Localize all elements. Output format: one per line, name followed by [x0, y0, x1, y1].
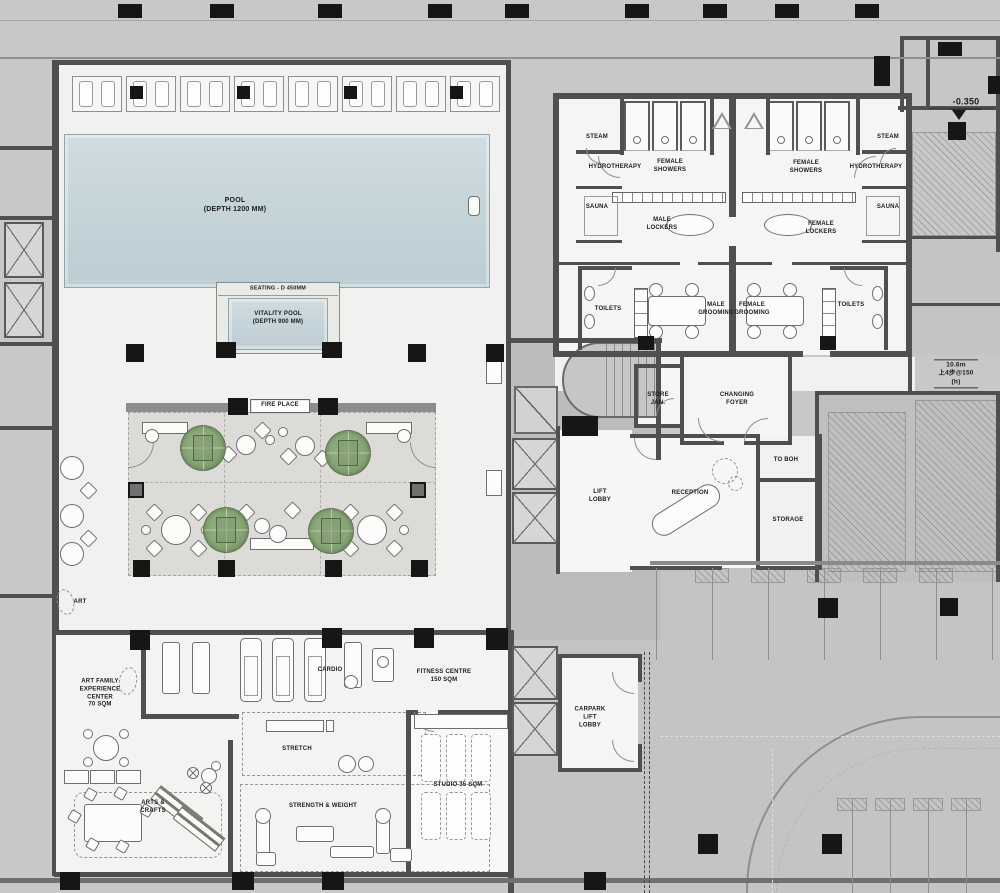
- room-label-female-showers-right: FEMALE SHOWERS: [790, 160, 822, 176]
- mat-shelf: [326, 720, 334, 732]
- column: [450, 86, 463, 99]
- column: [344, 86, 357, 99]
- column: [210, 4, 234, 18]
- wall-segment: [756, 478, 822, 482]
- wall-segment: [0, 57, 1000, 59]
- side-table: [145, 429, 159, 443]
- wall-segment: [910, 236, 1000, 239]
- column: [126, 344, 144, 362]
- room-label-male-grooming: MALE GROOMING: [698, 302, 734, 318]
- stool: [649, 283, 663, 297]
- side-table: [60, 504, 84, 528]
- plant-sketch: [728, 476, 743, 491]
- lounge-chair: [295, 81, 309, 107]
- side-table: [295, 436, 315, 456]
- escalator-icon: [514, 386, 558, 434]
- column: [322, 628, 342, 648]
- mid-right-area: [908, 238, 1000, 355]
- road-dash-line: [660, 736, 1000, 737]
- side-table: [269, 525, 287, 543]
- kids-chair: [83, 729, 93, 739]
- wall-segment: [815, 391, 819, 582]
- wall-segment: [862, 240, 908, 243]
- stool: [685, 283, 699, 297]
- kids-table: [93, 735, 119, 761]
- column: [940, 598, 958, 616]
- room-label-female-lockers: FEMALE LOCKERS: [806, 221, 837, 237]
- side-table: [399, 525, 409, 535]
- foot-bath-triangle-icon: [747, 116, 761, 128]
- wall-segment: [141, 714, 239, 719]
- corridor-cabinet: [486, 470, 502, 496]
- wall-segment: [756, 434, 760, 570]
- kids-stool-icon: [211, 761, 221, 771]
- wall-segment: [126, 403, 230, 412]
- sauna-bench: [866, 196, 900, 236]
- elevator-shaft-icon: [512, 492, 558, 544]
- exercise-ball-icon: [338, 755, 356, 773]
- pool: [64, 134, 490, 288]
- treadmill-belt: [308, 656, 322, 696]
- column: [237, 86, 250, 99]
- column: [855, 4, 879, 18]
- locker-row: [742, 192, 856, 203]
- foot-bath-triangle-icon: [715, 116, 729, 128]
- yoga-mat: [471, 734, 491, 782]
- column: [486, 628, 508, 650]
- room-label-hydrotherapy-right: HYDROTHERAPY: [850, 164, 903, 172]
- room-label-female-showers-left: FEMALE SHOWERS: [654, 159, 686, 175]
- storage-cabinet: [414, 714, 508, 729]
- wall-segment: [788, 353, 792, 445]
- gym-machine-icon: [344, 675, 358, 689]
- wall-segment: [0, 594, 54, 598]
- wall-segment: [0, 20, 1000, 21]
- column: [486, 344, 504, 362]
- wall-segment: [698, 262, 772, 265]
- wall-segment: [0, 146, 54, 150]
- room-label-carpark-lift-lobby: CARPARK LIFT LOBBY: [575, 706, 606, 729]
- level-datum-icon: [952, 110, 966, 120]
- wall-segment: [884, 266, 888, 350]
- hatch-area: [828, 412, 906, 572]
- room-label-changing-foyer: CHANGING FOYER: [720, 392, 754, 408]
- kids-chair: [119, 729, 129, 739]
- lounge-chair: [479, 81, 493, 107]
- gym-machine-icon: [375, 808, 391, 824]
- room-label-female-grooming: FEMALE GROOMING: [734, 302, 770, 318]
- elevator-shaft-icon: [4, 282, 44, 338]
- wall-segment: [0, 216, 54, 220]
- column: [410, 482, 426, 498]
- side-table: [60, 456, 84, 480]
- vanity-counter: [822, 288, 836, 338]
- column: [638, 336, 654, 350]
- room-label-male-lockers: MALE LOCKERS: [647, 217, 678, 233]
- side-table: [236, 435, 256, 455]
- gym-machine-icon: [377, 656, 389, 668]
- lounge-chair: [101, 81, 115, 107]
- road-dash-line: [772, 748, 773, 893]
- column: [322, 342, 342, 358]
- planter-icon: [338, 440, 358, 466]
- wall-segment: [228, 740, 233, 875]
- column: [703, 4, 727, 18]
- wall-segment: [576, 240, 622, 243]
- column: [505, 4, 529, 18]
- yoga-mat: [421, 792, 441, 840]
- wall-segment: [0, 426, 54, 430]
- column: [318, 4, 342, 18]
- locker-row: [612, 192, 726, 203]
- column: [322, 872, 344, 890]
- vanity-counter: [634, 288, 648, 338]
- room-label-storage: STORAGE: [773, 517, 804, 525]
- planter-icon: [193, 435, 213, 461]
- yoga-mat: [421, 734, 441, 782]
- room-label-fire-place: FIRE PLACE: [250, 399, 310, 413]
- room-label-store-jan: STORE JAN.: [647, 392, 669, 408]
- wall-segment: [908, 355, 912, 395]
- gym-machine-icon: [192, 642, 210, 694]
- room-label-fitness-centre: FITNESS CENTRE 150 SQM: [417, 669, 471, 685]
- column: [128, 482, 144, 498]
- side-table: [278, 427, 288, 437]
- expansion-joint: [649, 652, 650, 893]
- wall-segment: [52, 60, 56, 876]
- wall-segment: [996, 391, 1000, 582]
- cubby-shelf: [116, 770, 141, 784]
- room-label-strength-weight: STRENGTH & WEIGHT: [289, 803, 357, 811]
- column: [60, 872, 80, 890]
- room-label-seating: SEATING - D 450MM: [250, 285, 306, 292]
- toilet-fixture-icon: [584, 314, 595, 329]
- planter-icon: [321, 518, 341, 544]
- wall-segment: [218, 295, 338, 296]
- kids-chair: [119, 757, 129, 767]
- lounge-chair: [155, 81, 169, 107]
- elevator-shaft-icon: [512, 646, 558, 700]
- wall-segment: [910, 303, 1000, 306]
- column: [775, 4, 799, 18]
- wall-segment: [856, 99, 860, 155]
- column: [414, 628, 434, 648]
- elevator-shaft-icon: [512, 438, 558, 490]
- side-table: [161, 515, 191, 545]
- column: [218, 560, 235, 577]
- side-table: [397, 429, 411, 443]
- room-label-cardio: CARDIO: [318, 667, 343, 675]
- room-label-hydrotherapy-left: HYDROTHERAPY: [589, 164, 642, 172]
- side-table: [60, 542, 84, 566]
- mat-shelf: [266, 720, 324, 732]
- yoga-mat: [471, 792, 491, 840]
- grid-line: [130, 482, 436, 483]
- treadmill-belt: [276, 656, 290, 696]
- wall-segment: [900, 36, 904, 112]
- column: [820, 336, 836, 350]
- wall-segment: [54, 60, 510, 65]
- shower-drain-icon: [833, 136, 841, 144]
- room-label-toilets-left: TOILETS: [595, 306, 622, 314]
- wall-segment: [650, 561, 1000, 565]
- planter-icon: [216, 517, 236, 543]
- parking-line: [880, 568, 881, 660]
- column: [822, 834, 842, 854]
- room-label-reception: RECEPTION: [672, 490, 709, 498]
- pool-ladder-icon: [468, 196, 480, 216]
- room-label-vitality-pool: VITALITY POOL (DEPTH 900 MM): [253, 311, 303, 327]
- side-table: [265, 435, 275, 445]
- wall-segment: [558, 654, 562, 772]
- wall-segment: [792, 262, 908, 265]
- lounge-chair: [79, 81, 93, 107]
- wall-segment: [558, 262, 680, 265]
- yoga-mat: [446, 792, 466, 840]
- gym-machine-icon: [256, 852, 276, 866]
- wall-segment: [906, 93, 912, 357]
- shower-drain-icon: [633, 136, 641, 144]
- gym-machine-icon: [390, 848, 412, 862]
- column: [228, 398, 248, 415]
- room-label-sauna-left: SAUNA: [586, 204, 608, 212]
- wall-segment: [830, 351, 912, 357]
- exercise-ball-icon: [358, 756, 374, 772]
- column: [118, 4, 142, 18]
- room-label-art-family: ART FAMILY EXPERIENCE CENTER 70 SQM: [80, 678, 121, 709]
- column: [698, 834, 718, 854]
- wall-segment: [558, 768, 642, 772]
- room-label-to-boh: TO BOH: [774, 457, 798, 465]
- cubby-shelf: [90, 770, 115, 784]
- stair-note-label: 10.6m 上4步@150 (h): [934, 359, 978, 388]
- parking-line: [966, 798, 967, 893]
- column: [318, 398, 338, 415]
- column: [938, 42, 962, 56]
- gym-machine-icon: [296, 826, 334, 842]
- toilet-fixture-icon: [584, 286, 595, 301]
- column: [948, 122, 966, 140]
- stool: [685, 325, 699, 339]
- yoga-mat: [446, 734, 466, 782]
- kids-stool-icon: [200, 782, 212, 794]
- hatch-area: [912, 132, 996, 236]
- parking-line: [656, 568, 657, 660]
- parking-line: [928, 798, 929, 893]
- gym-machine-icon: [330, 846, 374, 858]
- room-label-art: ART: [74, 599, 87, 607]
- wall-segment: [680, 353, 684, 445]
- wall-segment: [54, 630, 510, 635]
- column: [584, 872, 606, 890]
- wall-segment: [506, 60, 511, 634]
- wall-segment: [766, 99, 770, 155]
- room-label-toilets-right: TOILETS: [838, 302, 865, 310]
- stool: [783, 325, 797, 339]
- parking-line: [890, 798, 891, 893]
- toilet-fixture-icon: [872, 286, 883, 301]
- gym-machine-icon: [255, 808, 271, 824]
- wall-segment: [996, 36, 1000, 252]
- expansion-joint: [644, 652, 645, 893]
- toilet-fixture-icon: [872, 314, 883, 329]
- wall-segment: [553, 93, 559, 357]
- room-label-lift-lobby: LIFT LOBBY: [589, 489, 611, 505]
- room-label-studio: STUDIO 35 SQM: [434, 782, 483, 790]
- wall-segment: [558, 654, 642, 658]
- wall-segment: [0, 878, 1000, 883]
- parking-line: [768, 568, 769, 660]
- wall-segment: [926, 38, 930, 108]
- craft-table: [84, 804, 142, 842]
- floor-plan-canvas: POOL (DEPTH 1200 MM) SEATING - D 450MM V…: [0, 0, 1000, 893]
- sauna-bench: [584, 196, 618, 236]
- room-label-sauna-right: SAUNA: [877, 204, 899, 212]
- wall-segment: [638, 744, 642, 772]
- lounge-chair: [209, 81, 223, 107]
- room-label-arts-crafts: ARTS & CRAFTS: [140, 800, 166, 816]
- column: [818, 598, 838, 618]
- parking-line: [936, 568, 937, 660]
- stool: [747, 283, 761, 297]
- wall-segment: [638, 654, 642, 682]
- column: [133, 560, 150, 577]
- lounge-chair: [371, 81, 385, 107]
- wall-segment: [862, 186, 908, 189]
- level-datum-label: -0.350: [951, 97, 982, 110]
- parking-line: [852, 798, 853, 893]
- lounge-chair: [403, 81, 417, 107]
- wall-segment: [676, 353, 792, 357]
- elevator-shaft-icon: [4, 222, 44, 278]
- wall-segment: [620, 99, 624, 155]
- parking-line: [992, 568, 993, 660]
- side-table: [141, 525, 151, 535]
- stool: [783, 283, 797, 297]
- column: [988, 76, 1000, 94]
- wall-segment: [0, 342, 54, 346]
- kids-chair: [83, 757, 93, 767]
- lounge-chair: [425, 81, 439, 107]
- column: [130, 630, 150, 650]
- treadmill-belt: [244, 656, 258, 696]
- hatch-area: [915, 400, 997, 572]
- lounge-chair: [317, 81, 331, 107]
- shower-drain-icon: [689, 136, 697, 144]
- column: [130, 86, 143, 99]
- side-table: [254, 518, 270, 534]
- wall-segment: [576, 186, 622, 189]
- kids-stool-icon: [187, 767, 199, 779]
- room-label-steam-right: STEAM: [877, 134, 899, 142]
- room-label-pool: POOL (DEPTH 1200 MM): [204, 196, 267, 214]
- column: [325, 560, 342, 577]
- column: [232, 872, 254, 890]
- shower-drain-icon: [777, 136, 785, 144]
- elevator-shaft-icon: [512, 702, 558, 756]
- wall-segment: [756, 566, 822, 570]
- column: [216, 342, 236, 358]
- column: [428, 4, 452, 18]
- wall-segment: [54, 872, 510, 877]
- column: [874, 56, 890, 86]
- gym-machine-icon: [162, 642, 180, 694]
- column: [408, 344, 426, 362]
- wall-segment: [630, 566, 722, 570]
- stool: [747, 325, 761, 339]
- side-table: [357, 515, 387, 545]
- column: [562, 416, 598, 436]
- room-label-stretch: STRETCH: [282, 746, 312, 754]
- wall-segment: [634, 364, 638, 428]
- lounge-chair: [187, 81, 201, 107]
- column: [625, 4, 649, 18]
- wall-segment: [900, 36, 1000, 40]
- parking-line: [712, 568, 713, 660]
- cubby-shelf: [64, 770, 89, 784]
- lounge-chair: [263, 81, 277, 107]
- shower-drain-icon: [661, 136, 669, 144]
- shower-drain-icon: [805, 136, 813, 144]
- column: [411, 560, 428, 577]
- room-label-steam-left: STEAM: [586, 134, 608, 142]
